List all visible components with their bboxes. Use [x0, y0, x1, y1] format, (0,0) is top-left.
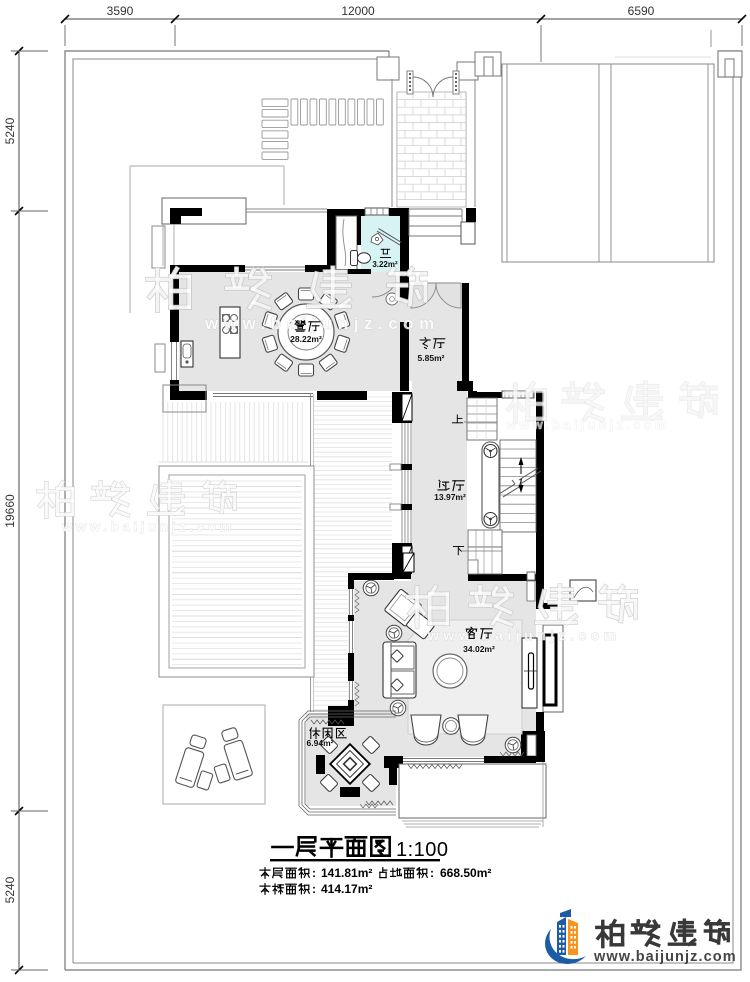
svg-text:5240: 5240 [3, 117, 17, 144]
svg-text:6590: 6590 [628, 4, 655, 18]
svg-text:12000: 12000 [341, 4, 375, 18]
svg-text:www.baijunjz.com: www.baijunjz.com [593, 949, 737, 965]
svg-text:5.85m²: 5.85m² [418, 353, 445, 363]
svg-text:141.81m²: 141.81m² [321, 866, 372, 880]
svg-text:www.baijunjz.com: www.baijunjz.com [505, 417, 669, 432]
svg-text:www.baijunjz.com: www.baijunjz.com [204, 314, 440, 333]
svg-text::: : [430, 866, 434, 880]
svg-text:19660: 19660 [3, 494, 17, 528]
svg-text:6.94m²: 6.94m² [307, 738, 334, 748]
svg-text:5240: 5240 [3, 876, 17, 903]
svg-text::: : [312, 882, 316, 896]
svg-text:414.17m²: 414.17m² [321, 882, 372, 896]
svg-text:www.baijunjz.com: www.baijunjz.com [427, 627, 621, 643]
svg-text:www.baijunjz.com: www.baijunjz.com [61, 519, 235, 534]
svg-text:1:100: 1:100 [396, 839, 449, 861]
svg-text:13.97m²: 13.97m² [434, 492, 466, 502]
svg-text:3590: 3590 [107, 4, 134, 18]
svg-text:668.50m²: 668.50m² [440, 866, 491, 880]
svg-text:28.22m²: 28.22m² [290, 334, 322, 344]
svg-text:3.22m²: 3.22m² [372, 260, 398, 269]
svg-text::: : [312, 866, 316, 880]
svg-text:34.02m²: 34.02m² [463, 644, 495, 654]
